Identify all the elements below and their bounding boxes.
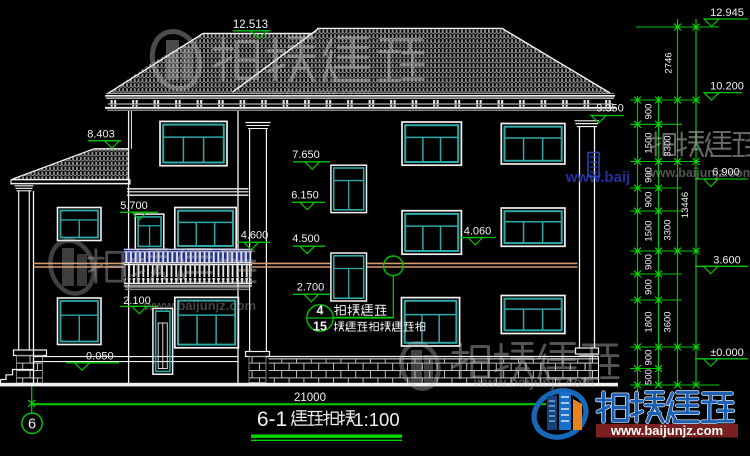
svg-text:1500: 1500	[644, 220, 655, 241]
svg-text:10.200: 10.200	[710, 80, 744, 92]
svg-text:6.150: 6.150	[291, 189, 319, 201]
svg-text:www.baijunjz.com: www.baijunjz.com	[610, 423, 723, 438]
svg-text:21000: 21000	[294, 392, 326, 404]
svg-text:2746: 2746	[664, 52, 675, 73]
svg-text:12.513: 12.513	[233, 19, 268, 31]
svg-text:13446: 13446	[680, 192, 691, 218]
svg-text:1500: 1500	[644, 132, 655, 153]
svg-text:-0.050: -0.050	[82, 351, 113, 363]
svg-text:www.baijunjz.com: www.baijunjz.com	[143, 298, 256, 313]
svg-text:900: 900	[644, 104, 655, 120]
svg-text:6-1: 6-1	[257, 408, 287, 431]
svg-text:900: 900	[644, 279, 655, 295]
svg-text:12.945: 12.945	[710, 7, 744, 19]
svg-text:2.700: 2.700	[297, 281, 325, 293]
svg-text:4.600: 4.600	[241, 230, 269, 242]
svg-text:3300: 3300	[663, 219, 674, 240]
svg-text:5.700: 5.700	[120, 200, 148, 212]
svg-text:900: 900	[644, 192, 655, 208]
svg-text:500: 500	[644, 369, 655, 385]
svg-text:±0.000: ±0.000	[710, 347, 744, 359]
svg-text:1800: 1800	[644, 311, 655, 332]
svg-text:4.500: 4.500	[292, 233, 320, 245]
svg-text:4: 4	[317, 304, 324, 318]
svg-text:3600: 3600	[663, 311, 674, 332]
svg-text:3.600: 3.600	[713, 255, 741, 267]
svg-text:15: 15	[313, 320, 327, 334]
svg-text:8.403: 8.403	[87, 129, 115, 141]
svg-text:www.baijunjz.com: www.baijunjz.com	[473, 374, 595, 390]
svg-text:9.350: 9.350	[596, 103, 624, 115]
svg-text:www.baijunjz.com: www.baijunjz.com	[645, 166, 750, 180]
svg-text:www.baij: www.baij	[565, 169, 630, 186]
svg-text:6: 6	[28, 416, 36, 432]
svg-text:1:100: 1:100	[353, 409, 399, 430]
svg-text:4.060: 4.060	[464, 225, 492, 237]
svg-text:900: 900	[644, 254, 655, 270]
svg-text:900: 900	[644, 350, 655, 366]
svg-text:www.baijunjz.com: www.baijunjz.com	[249, 84, 371, 100]
svg-text:7.650: 7.650	[292, 149, 320, 161]
